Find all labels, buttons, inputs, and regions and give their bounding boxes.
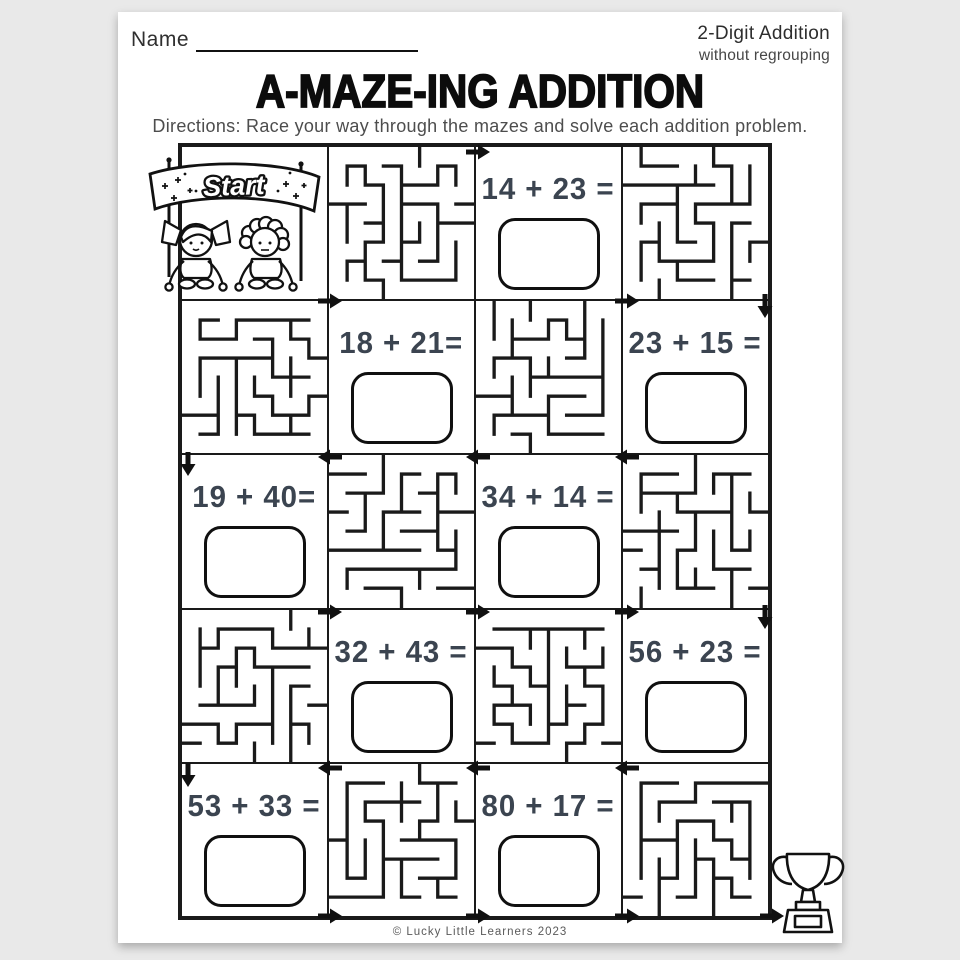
maze-grid: Start <box>178 143 772 920</box>
worksheet-page: Name 2-Digit Addition without regrouping… <box>118 12 842 943</box>
maze-drawing <box>476 610 621 762</box>
path-arrow-icon <box>613 907 641 925</box>
answer-box[interactable] <box>645 681 747 753</box>
path-arrow-icon <box>316 907 344 925</box>
problem-cell: 14 + 23 = <box>475 146 622 300</box>
problem-cell: 19 + 40= <box>181 454 328 608</box>
copyright-footer: © Lucky Little Learners 2023 <box>118 926 842 938</box>
path-arrow-icon <box>756 292 774 320</box>
problem-cell: 23 + 15 = <box>622 300 769 454</box>
problem-cell: 80 + 17 = <box>475 763 622 917</box>
addition-problem: 80 + 17 = <box>482 788 615 824</box>
addition-problem: 34 + 14 = <box>482 479 615 515</box>
maze-cell <box>181 609 328 763</box>
addition-problem: 14 + 23 = <box>482 171 615 207</box>
maze-cell <box>622 454 769 608</box>
maze-drawing <box>182 610 327 762</box>
problem-cell: 18 + 21= <box>328 300 475 454</box>
maze-cell <box>622 763 769 917</box>
answer-box[interactable] <box>351 681 453 753</box>
path-arrow-icon <box>613 759 641 777</box>
maze-drawing <box>329 764 474 916</box>
addition-problem: 56 + 23 = <box>629 634 762 670</box>
maze-drawing <box>623 764 768 916</box>
maze-drawing <box>329 455 474 607</box>
path-arrow-icon <box>756 603 774 631</box>
maze-cell <box>328 146 475 300</box>
problem-cell: 32 + 43 = <box>328 609 475 763</box>
answer-box[interactable] <box>204 835 306 907</box>
answer-box[interactable] <box>204 526 306 598</box>
name-row: Name <box>131 28 418 52</box>
addition-problem: 32 + 43 = <box>335 634 468 670</box>
page-title: A-MAZE-ING ADDITION <box>161 64 798 118</box>
path-arrow-icon <box>464 759 492 777</box>
maze-drawing <box>623 147 768 299</box>
path-arrow-icon <box>316 292 344 310</box>
addition-problem: 23 + 15 = <box>629 325 762 361</box>
answer-box[interactable] <box>498 835 600 907</box>
path-arrow-icon <box>613 448 641 466</box>
maze-cell <box>475 609 622 763</box>
answer-box[interactable] <box>351 372 453 444</box>
path-arrow-icon <box>464 143 492 161</box>
answer-box[interactable] <box>498 218 600 290</box>
path-arrow-icon <box>316 448 344 466</box>
maze-cell <box>475 300 622 454</box>
problem-cell: 56 + 23 = <box>622 609 769 763</box>
path-arrow-icon <box>179 761 197 789</box>
answer-box[interactable] <box>645 372 747 444</box>
path-arrow-icon <box>464 907 492 925</box>
addition-problem: 18 + 21= <box>340 325 464 361</box>
directions-text: Directions: Race your way through the ma… <box>118 116 842 137</box>
maze-cell <box>622 146 769 300</box>
maze-drawing <box>329 147 474 299</box>
topic-line1: 2-Digit Addition <box>697 22 830 46</box>
trophy-icon <box>768 848 848 942</box>
problem-cell: 34 + 14 = <box>475 454 622 608</box>
start-banner-illustration: Start <box>138 147 330 297</box>
path-arrow-icon <box>316 759 344 777</box>
path-arrow-icon <box>613 603 641 621</box>
maze-cell <box>328 454 475 608</box>
path-arrow-icon <box>464 603 492 621</box>
maze-drawing <box>182 301 327 453</box>
boy-racer <box>235 217 296 291</box>
addition-problem: 19 + 40= <box>193 479 317 515</box>
maze-cell <box>181 300 328 454</box>
answer-box[interactable] <box>498 526 600 598</box>
name-label: Name <box>131 28 189 52</box>
path-arrow-icon <box>179 450 197 478</box>
path-arrow-icon <box>758 907 786 925</box>
maze-drawing <box>623 455 768 607</box>
girl-racer <box>162 221 230 291</box>
start-banner-text: Start <box>203 170 267 202</box>
path-arrow-icon <box>613 292 641 310</box>
path-arrow-icon <box>316 603 344 621</box>
worksheet-topic: 2-Digit Addition without regrouping <box>697 22 830 65</box>
maze-cell <box>328 763 475 917</box>
topic-line2: without regrouping <box>697 46 830 65</box>
maze-drawing <box>476 301 621 453</box>
path-arrow-icon <box>464 448 492 466</box>
name-input-line[interactable] <box>196 30 418 52</box>
addition-problem: 53 + 33 = <box>188 788 321 824</box>
problem-cell: 53 + 33 = <box>181 763 328 917</box>
start-cell: Start <box>181 146 328 300</box>
